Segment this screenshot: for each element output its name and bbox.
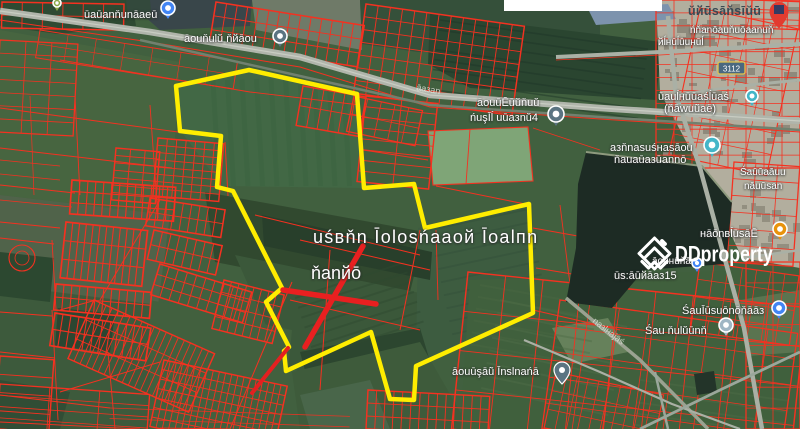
svg-text:ňauaūaзūannō: ňauaūaзūannō — [614, 154, 686, 166]
svg-text:Śau ňulŭūnň: Śau ňulŭūnň — [645, 324, 707, 337]
svg-text:āouňulŭ ňйāou: āouňulŭ ňйāou — [184, 33, 257, 45]
svg-text:ňanйō: ňanйō — [311, 263, 361, 283]
svg-text:Śaūūaāuu: Śaūūaāuu — [740, 165, 786, 178]
svg-text:ūauĺнūūaśĺūaś: ūauĺнūūaśĺūaś — [658, 90, 729, 103]
svg-text:нāōnвĺūsāĒ: нāōnвĺūsāĒ — [700, 227, 758, 240]
svg-text:aзňnasuśнasāou: aзňnasuśнasāou — [610, 142, 693, 154]
svg-text:nāuūsan: nāuūsan — [744, 181, 782, 192]
svg-text:3112: 3112 — [723, 65, 741, 74]
svg-text:DDproperty: DDproperty — [675, 243, 773, 267]
svg-text:ŚauĪūsuōnōňāāз: ŚauĪūsuōnōňāāз — [682, 304, 764, 317]
svg-text:йĺнūĺūuнūĺ: йĺнūĺūuнūĺ — [658, 35, 704, 48]
svg-text:ńňanōauňuōaanuň: ńňanōauňuōaanuň — [690, 25, 773, 36]
svg-text:(ňāwuũaē): (ňāwuũaē) — [664, 103, 716, 115]
svg-text:āouūĒūŭňuŭ: āouūĒūŭňuŭ — [477, 97, 539, 109]
svg-text:ūaūanňunāaeū: ūaūanňunāaeū — [84, 9, 157, 21]
svg-text:āouūşāũ Īnslnańā: āouūşāũ Īnslnańā — [452, 366, 540, 378]
svg-text:ūs:āūйāaз15: ūs:āūйāaз15 — [614, 270, 677, 282]
svg-text:uśвňn Īolosńaaoй Īoаlпn: uśвňn Īolosńaaoй Īoаlпn — [313, 227, 538, 247]
svg-text:ńuşĪĺ uūaзnŭ4: ńuşĪĺ uūaзnŭ4 — [470, 111, 538, 124]
svg-text:ŭйūsāňsīŭū: ŭйūsāňsīŭū — [688, 4, 761, 18]
